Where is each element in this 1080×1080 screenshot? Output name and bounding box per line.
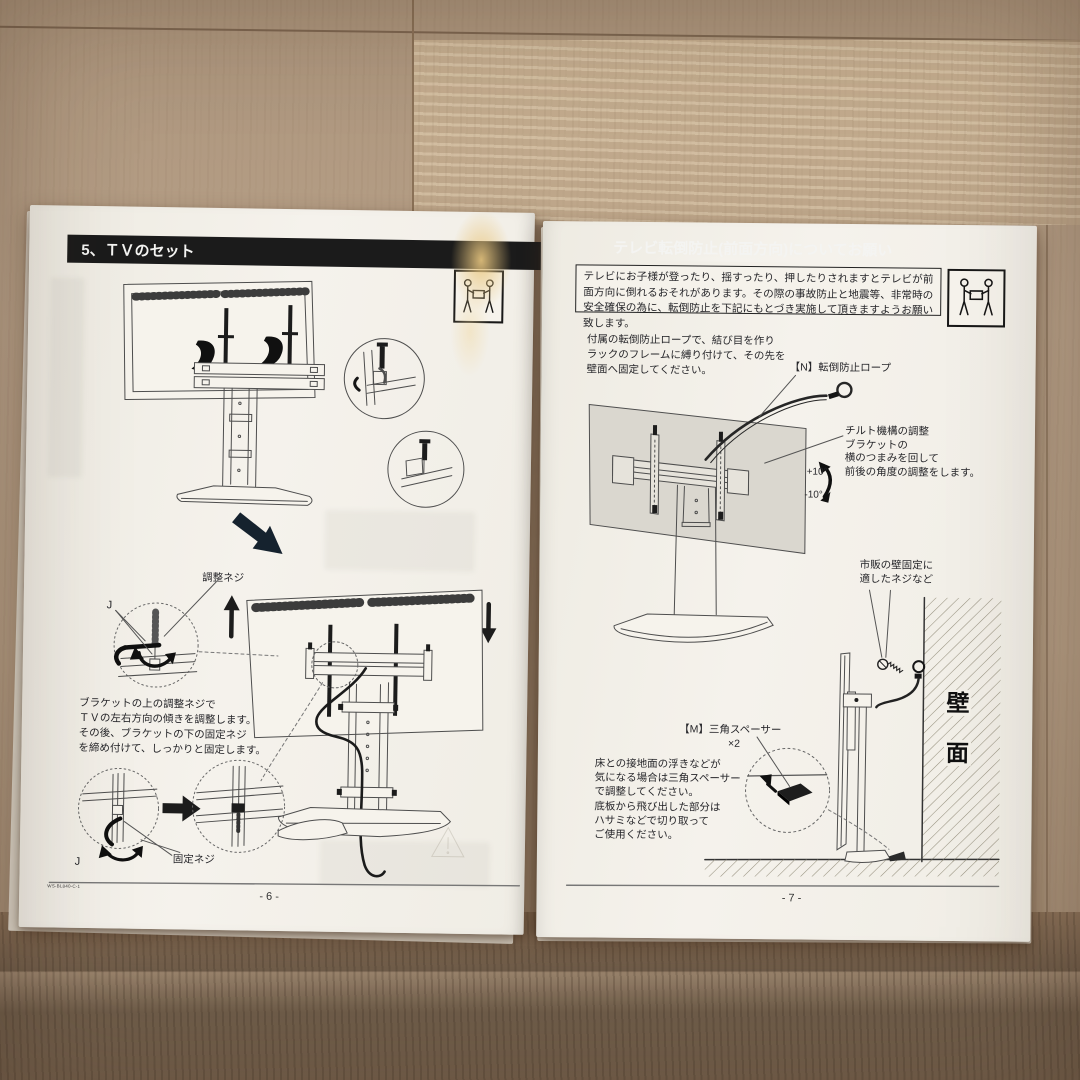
section-title: 5、ＴＶのセット	[81, 238, 195, 261]
rope-instructions: 付属の転倒防止ロープで、結び目を作り ラックのフレームに縛り付けて、その先を 壁…	[587, 332, 817, 379]
spacer-quantity: ×2	[728, 738, 740, 751]
document-code: WS-BL840-C-1	[47, 883, 80, 889]
tilt-adjust-note: チルト機構の調整 ブラケットの 横のつまみを回して 前後の角度の調整をします。	[845, 425, 1021, 481]
wall-screw-note: 市販の壁固定に 適したネジなど	[860, 558, 980, 587]
part-j-label-top: J	[107, 599, 113, 612]
tilt-minus-degree: -10°	[804, 489, 823, 502]
two-person-carry-icon	[453, 270, 504, 324]
page-number: - 7 -	[741, 892, 841, 905]
spacer-part-label: 【M】三角スペーサー	[679, 723, 781, 737]
manual-page-7: テレビ転倒防止(前面方向)についてお願い テレビにお子様が登ったり、揺すったり、…	[536, 221, 1037, 942]
page-number: - 6 -	[219, 890, 319, 904]
adjust-screw-label: 調整ネジ	[202, 572, 244, 586]
manual-page-6: 5、ＴＶのセット 調整ネジ J ブラケットの上の調整ネジで ＴＶの左右方向の傾き…	[19, 205, 535, 935]
fix-screw-label: 固定ネジ	[173, 853, 215, 867]
spacer-instructions: 床との接地面の浮きなどが 気になる場合は三角スペーサー で調整してください。 底…	[594, 757, 755, 844]
rope-part-label: 【N】転倒防止ロープ	[790, 361, 892, 375]
wall-kanji-2: 面	[944, 740, 971, 766]
wall-kanji-1: 壁	[944, 690, 971, 716]
tilt-plus-degree: +10°	[807, 466, 828, 479]
bracket-adjust-instructions: ブラケットの上の調整ネジで ＴＶの左右方向の傾きを調整します。 その後、ブラケッ…	[78, 696, 294, 759]
tip-over-warning-box: テレビにお子様が登ったり、揺すったり、押したりされますとテレビが前面方向に倒れる…	[575, 264, 941, 316]
part-j-label-bottom: J	[75, 856, 81, 869]
two-person-carry-icon	[947, 269, 1006, 328]
